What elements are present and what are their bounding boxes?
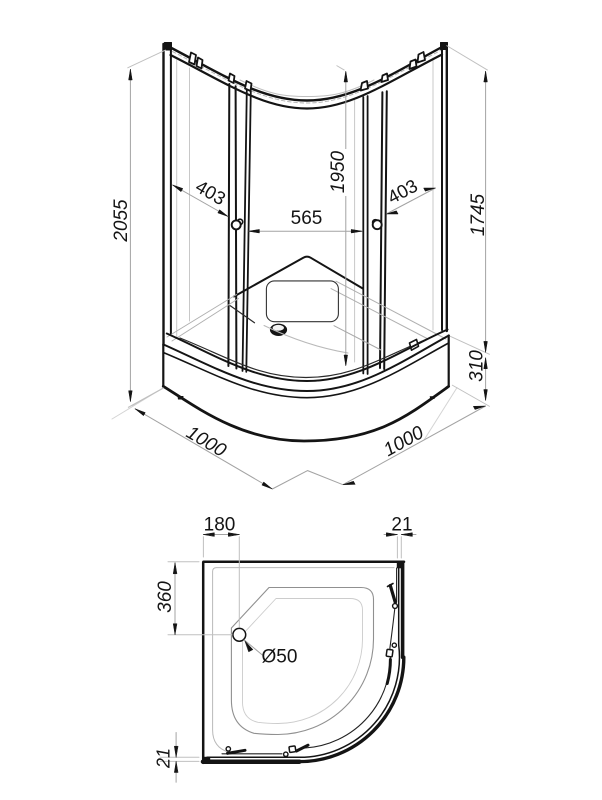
svg-text:180: 180 (204, 515, 236, 536)
svg-text:1950: 1950 (328, 150, 349, 193)
svg-text:565: 565 (291, 208, 323, 229)
svg-text:21: 21 (154, 748, 174, 769)
svg-text:1745: 1745 (468, 193, 489, 236)
svg-text:360: 360 (155, 581, 176, 613)
svg-text:310: 310 (467, 350, 488, 382)
svg-text:2055: 2055 (111, 199, 132, 243)
svg-text:Ø50: Ø50 (262, 647, 298, 668)
svg-text:21: 21 (391, 515, 412, 536)
